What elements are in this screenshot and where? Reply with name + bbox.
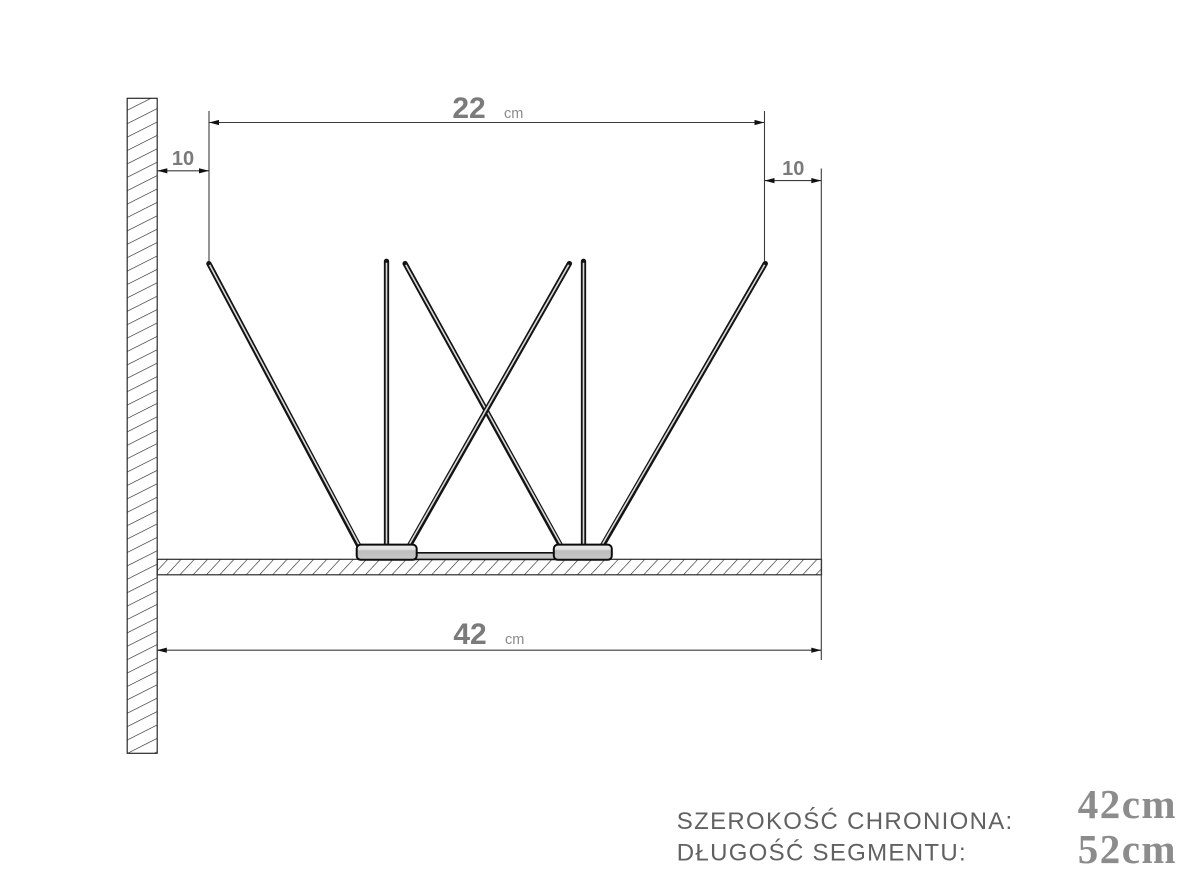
svg-text:cm: cm	[505, 632, 524, 648]
svg-text:10: 10	[782, 158, 804, 180]
svg-text:22: 22	[452, 92, 485, 125]
svg-text:cm: cm	[504, 106, 523, 122]
svg-text:SZEROKOŚĆ CHRONIONA:: SZEROKOŚĆ CHRONIONA:	[677, 807, 1014, 835]
svg-text:52cm: 52cm	[1078, 826, 1177, 872]
svg-text:10: 10	[172, 148, 194, 170]
svg-text:DŁUGOŚĆ SEGMENTU:: DŁUGOŚĆ SEGMENTU:	[677, 839, 967, 867]
svg-text:42cm: 42cm	[1078, 781, 1177, 827]
svg-text:42: 42	[453, 618, 486, 651]
